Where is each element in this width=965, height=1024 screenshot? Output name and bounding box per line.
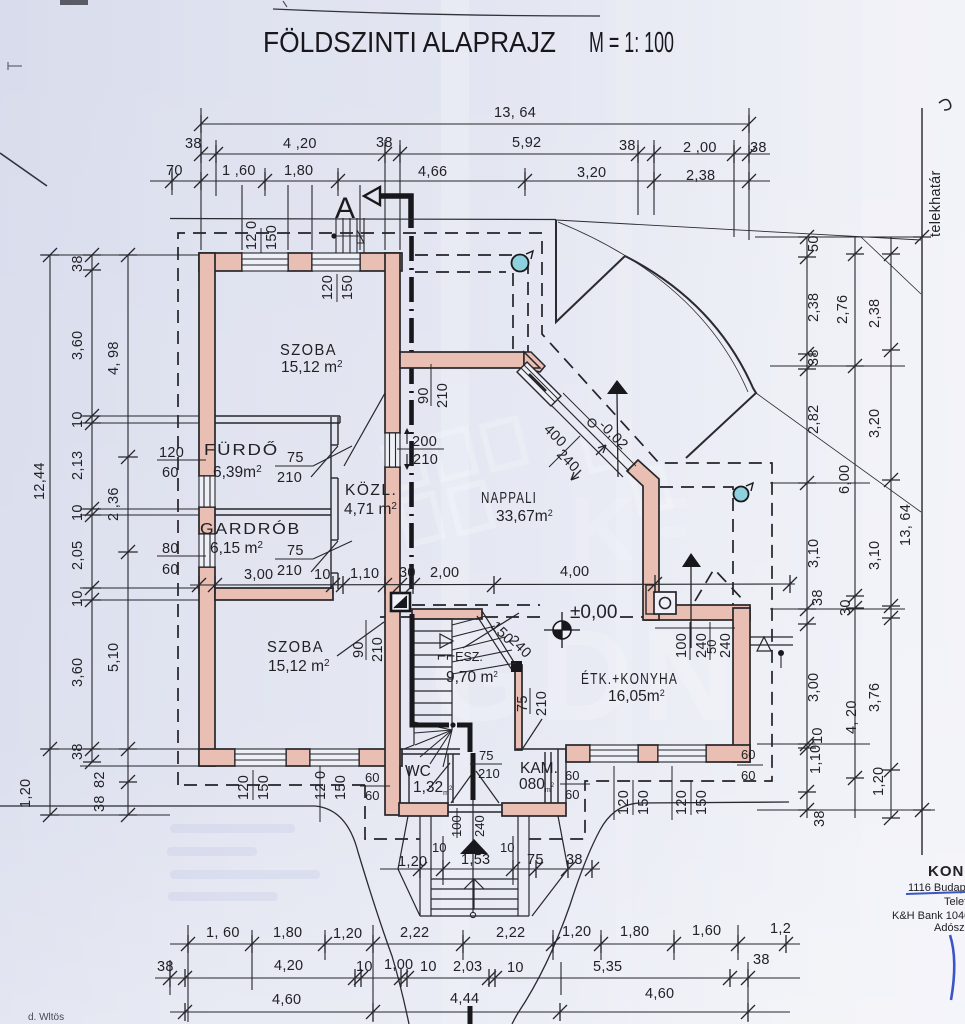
svg-text:1,00: 1,00 [384, 957, 413, 973]
svg-text:4,60: 4,60 [272, 992, 301, 1008]
svg-text:1,80: 1,80 [284, 163, 313, 179]
svg-text:60: 60 [162, 562, 179, 578]
svg-text:150: 150 [333, 775, 349, 800]
svg-text:2,82: 2,82 [806, 405, 822, 434]
svg-text:M = 1: 100: M = 1: 100 [589, 27, 674, 59]
svg-text:K&H Bank 10400: K&H Bank 10400 [892, 910, 965, 922]
svg-text:4,60: 4,60 [645, 986, 674, 1002]
svg-text:82: 82 [92, 771, 108, 788]
svg-text:10: 10 [507, 960, 524, 976]
svg-text:10: 10 [356, 959, 373, 975]
svg-text:1,60: 1,60 [692, 923, 721, 939]
svg-text:210: 210 [534, 691, 550, 716]
svg-text:33,67m2: 33,67m2 [496, 508, 553, 525]
svg-text:1,80: 1,80 [273, 925, 302, 941]
svg-text:2,05: 2,05 [70, 541, 86, 570]
svg-text:210: 210 [277, 563, 302, 579]
svg-text:120: 120 [159, 445, 184, 461]
svg-text:3,20: 3,20 [867, 409, 883, 438]
svg-text:3,20: 3,20 [577, 165, 606, 181]
svg-text:1,20: 1,20 [398, 854, 427, 870]
svg-text:±0,00: ±0,00 [570, 602, 617, 623]
svg-text:60: 60 [741, 747, 755, 762]
svg-text:38: 38 [750, 140, 767, 156]
svg-text:38: 38 [566, 852, 583, 868]
svg-text:38: 38 [753, 952, 770, 968]
svg-text:10: 10 [70, 504, 86, 521]
svg-text:13, 64: 13, 64 [494, 105, 536, 121]
svg-text:150: 150 [636, 790, 652, 815]
svg-text:6,15 m2: 6,15 m2 [210, 540, 263, 557]
svg-text:75: 75 [287, 450, 304, 466]
svg-text:240: 240 [472, 815, 487, 837]
svg-text:10: 10 [810, 727, 826, 744]
svg-text:WC: WC [405, 763, 431, 780]
svg-text:150: 150 [694, 790, 710, 815]
svg-text:4,44: 4,44 [450, 991, 479, 1007]
svg-text:38: 38 [157, 959, 174, 975]
svg-text:210: 210 [435, 383, 451, 408]
svg-text:210: 210 [413, 452, 438, 468]
svg-text:90: 90 [416, 387, 432, 404]
svg-text:10: 10 [500, 840, 514, 855]
svg-text:80: 80 [162, 541, 179, 557]
svg-text:10: 10 [420, 959, 437, 975]
svg-text:1,20: 1,20 [333, 926, 362, 942]
svg-text:75: 75 [515, 695, 531, 712]
svg-text:1,20: 1,20 [18, 779, 34, 808]
svg-text:150: 150 [256, 775, 272, 800]
svg-text:1,20: 1,20 [871, 767, 887, 796]
svg-text:10: 10 [432, 840, 446, 855]
svg-text:75: 75 [527, 852, 544, 868]
svg-text:Telefo: Telefo [944, 896, 965, 908]
svg-text:FÖLDSZINTI ALAPRAJZ: FÖLDSZINTI ALAPRAJZ [263, 27, 556, 59]
svg-text:210: 210 [370, 637, 386, 662]
svg-text:70: 70 [166, 163, 183, 179]
svg-text:2 ,00: 2 ,00 [683, 140, 717, 156]
svg-text:1,10: 1,10 [350, 566, 379, 582]
svg-text:38: 38 [806, 349, 822, 366]
svg-text:2,22: 2,22 [496, 925, 525, 941]
svg-text:120: 120 [236, 775, 252, 800]
svg-text:1,2: 1,2 [770, 921, 791, 937]
svg-text:2,00: 2,00 [430, 565, 459, 581]
svg-text:10: 10 [70, 590, 86, 607]
svg-text:4, 98: 4, 98 [106, 341, 122, 375]
svg-text:1,53: 1,53 [461, 852, 490, 868]
svg-text:150: 150 [264, 225, 280, 250]
svg-text:5,35: 5,35 [593, 959, 622, 975]
svg-text:90: 90 [351, 641, 367, 658]
svg-text:30: 30 [399, 565, 416, 581]
svg-text:2,38: 2,38 [686, 168, 715, 184]
svg-text:60: 60 [741, 768, 755, 783]
svg-text:4, 20: 4, 20 [844, 700, 860, 734]
svg-text:4,00: 4,00 [560, 564, 589, 580]
svg-text:50: 50 [806, 235, 822, 252]
svg-text:150: 150 [340, 275, 356, 300]
svg-text:2,13: 2,13 [70, 451, 86, 480]
svg-text:100: 100 [674, 633, 690, 658]
svg-text:200: 200 [412, 434, 437, 450]
svg-text:75: 75 [287, 543, 304, 559]
svg-text:240: 240 [718, 633, 734, 658]
svg-text:15,12 m2: 15,12 m2 [281, 359, 343, 376]
svg-text:38: 38 [376, 135, 393, 151]
svg-text:38: 38 [810, 589, 826, 606]
svg-text:12,44: 12,44 [32, 462, 48, 500]
svg-text:3,60: 3,60 [70, 658, 86, 687]
svg-text:2,38: 2,38 [867, 299, 883, 328]
svg-text:3,10: 3,10 [806, 539, 822, 568]
svg-text:12 0: 12 0 [313, 771, 329, 800]
svg-text:60: 60 [365, 788, 379, 803]
svg-text:60: 60 [565, 787, 579, 802]
svg-text:A: A [335, 192, 355, 225]
svg-text:2,22: 2,22 [400, 925, 429, 941]
svg-text:NAPPALI: NAPPALI [481, 490, 537, 507]
svg-text:2 ,36: 2 ,36 [106, 487, 122, 521]
svg-text:3,10: 3,10 [867, 541, 883, 570]
svg-text:d. Wltös: d. Wltös [28, 1012, 64, 1023]
svg-text:SZOBA: SZOBA [267, 639, 324, 656]
svg-text:1, 60: 1, 60 [206, 925, 240, 941]
svg-text:KAM.: KAM. [520, 760, 558, 777]
svg-text:13, 64: 13, 64 [898, 504, 914, 546]
svg-text:1,20: 1,20 [562, 924, 591, 940]
svg-text:SZOBA: SZOBA [280, 342, 337, 359]
svg-text:9,70 m2: 9,70 m2 [446, 669, 498, 686]
svg-text:FÜRDŐ: FÜRDŐ [204, 441, 279, 459]
svg-text:2,03: 2,03 [453, 959, 482, 975]
svg-text:3,60: 3,60 [70, 331, 86, 360]
svg-text:2,38: 2,38 [806, 293, 822, 322]
svg-text:4,20: 4,20 [274, 958, 303, 974]
svg-text:4,66: 4,66 [418, 164, 447, 180]
svg-text:1,10: 1,10 [808, 745, 824, 774]
svg-text:10: 10 [70, 411, 86, 428]
svg-text:120: 120 [320, 275, 336, 300]
svg-text:60: 60 [565, 768, 579, 783]
svg-text:38: 38 [92, 795, 108, 812]
svg-text:telekhatár: telekhatár [928, 170, 944, 237]
svg-text:120: 120 [674, 790, 690, 815]
svg-text:KÖZL.: KÖZL. [345, 481, 397, 499]
svg-text:38: 38 [70, 743, 86, 760]
svg-text:30: 30 [838, 599, 854, 616]
svg-text:3,00: 3,00 [244, 567, 273, 583]
svg-text:210: 210 [277, 470, 302, 486]
svg-text:GARDRÓB: GARDRÓB [200, 521, 301, 538]
svg-text:1 ,60: 1 ,60 [222, 163, 256, 179]
svg-text:3,00: 3,00 [806, 673, 822, 702]
svg-text:15,12 m2: 15,12 m2 [268, 658, 330, 675]
svg-text:4 ,20: 4 ,20 [283, 136, 317, 152]
svg-text:1,80: 1,80 [620, 924, 649, 940]
svg-text:10: 10 [314, 567, 331, 583]
svg-text:38: 38 [619, 138, 636, 154]
svg-text:38: 38 [70, 255, 86, 272]
svg-text:60: 60 [162, 465, 179, 481]
svg-text:38: 38 [812, 810, 828, 827]
svg-text:5,92: 5,92 [512, 135, 541, 151]
svg-text:5,10: 5,10 [106, 643, 122, 672]
svg-text:3,76: 3,76 [867, 683, 883, 712]
svg-text:4,71 m2: 4,71 m2 [344, 501, 397, 518]
svg-text:⌐⌐ESZ.: ⌐⌐ESZ. [437, 648, 483, 665]
svg-text:12 0: 12 0 [244, 221, 260, 250]
svg-text:KONCZ: KONCZ [928, 863, 965, 880]
svg-text:2,76: 2,76 [835, 295, 851, 324]
svg-text:50: 50 [704, 640, 719, 654]
svg-text:60: 60 [365, 770, 379, 785]
svg-text:210: 210 [478, 766, 500, 781]
svg-text:38: 38 [185, 136, 202, 152]
svg-text:6,00: 6,00 [837, 465, 853, 494]
svg-text:6,39m2: 6,39m2 [213, 464, 262, 481]
svg-text:120: 120 [616, 790, 632, 815]
svg-text:75: 75 [479, 748, 493, 763]
svg-text:ÉTK.+KONYHA: ÉTK.+KONYHA [581, 671, 678, 688]
svg-text:Adószá: Adószá [934, 922, 965, 934]
svg-text:16,05m2: 16,05m2 [608, 688, 665, 705]
